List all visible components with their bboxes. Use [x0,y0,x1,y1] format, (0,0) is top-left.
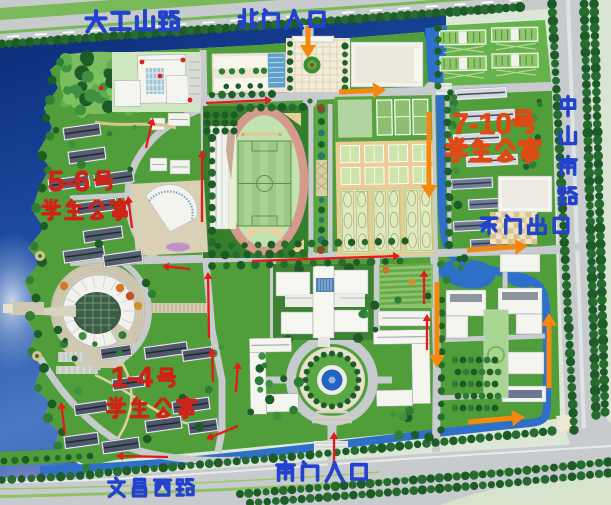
svg-text:1-4: 1-4 [111,362,153,394]
svg-text:7-10: 7-10 [452,108,512,141]
svg-text:5-6: 5-6 [48,166,90,198]
